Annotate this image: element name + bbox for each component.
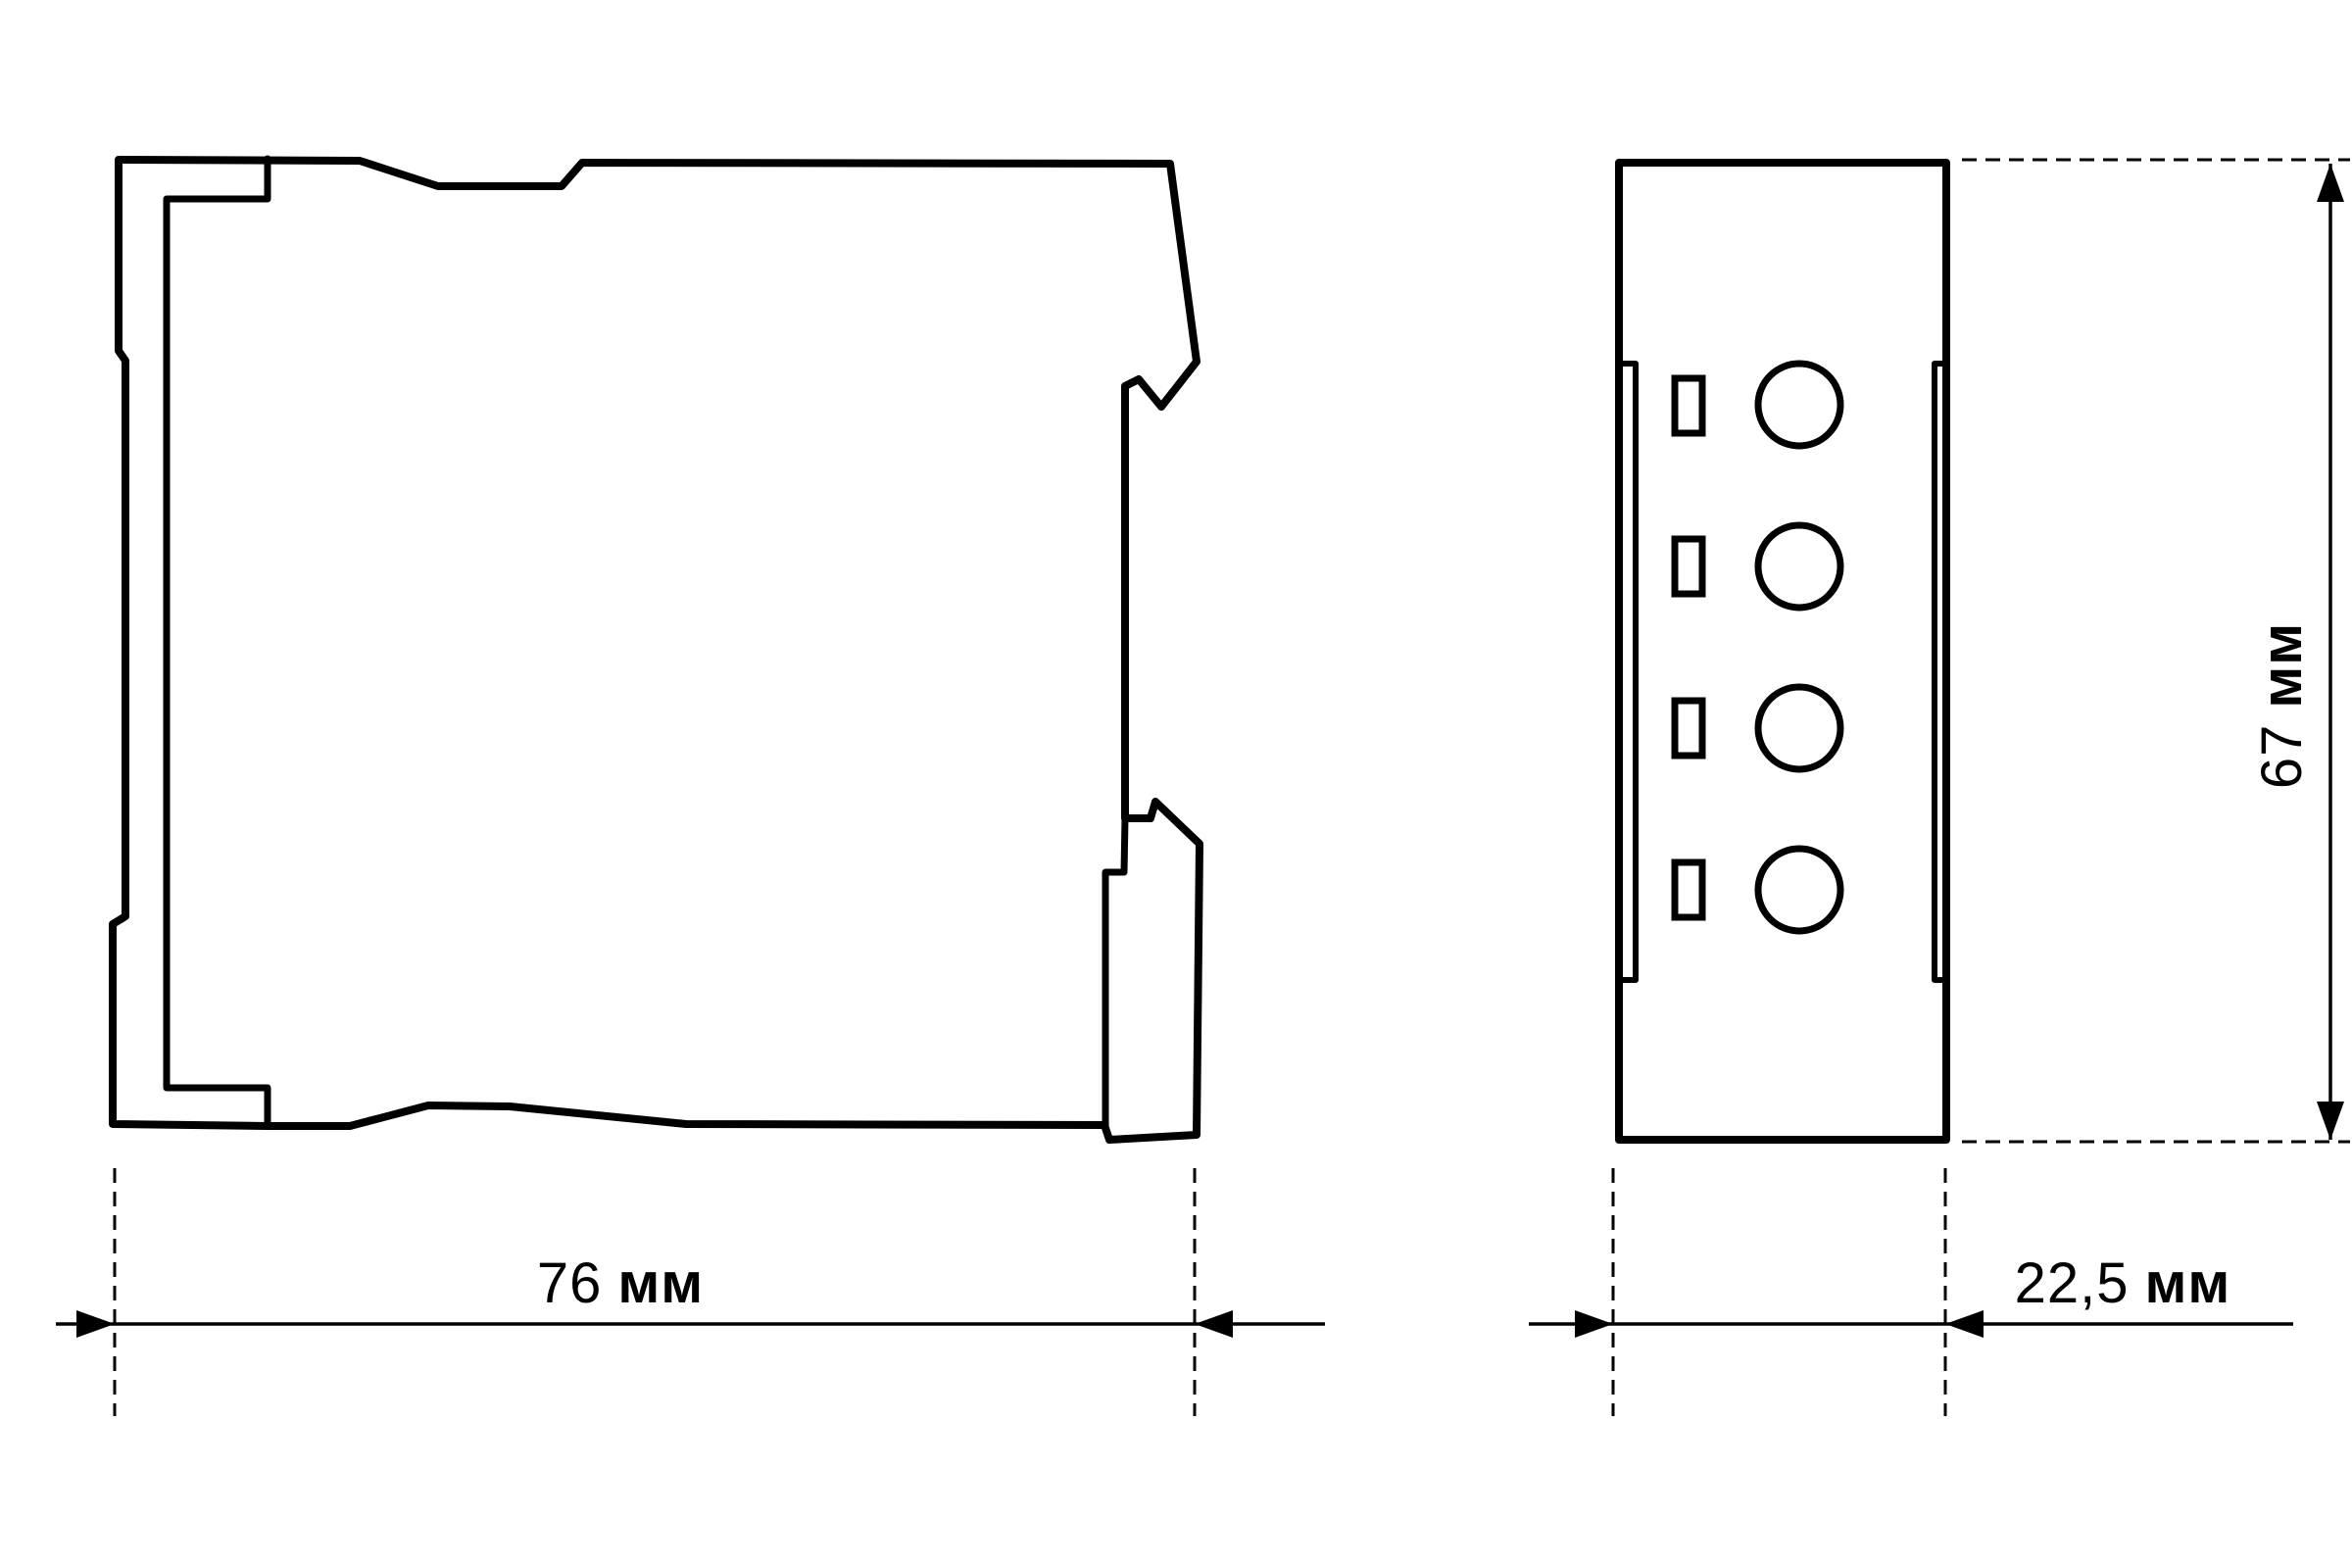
dimension-label-depth: 22,5мм — [2015, 1251, 2231, 1315]
side-view-clip-inner-edge — [167, 159, 268, 1126]
terminal-slot-rect — [1675, 701, 1702, 756]
arrowhead-right-icon — [1575, 1310, 1613, 1338]
front-view — [1619, 163, 1946, 1140]
terminal-slot-rect — [1675, 378, 1702, 433]
dimension-depth-22-5: 22,5мм — [1529, 1168, 2293, 1416]
arrowhead-down-icon — [2317, 1102, 2344, 1140]
terminal-screw-circle — [1758, 364, 1840, 446]
terminal-screw-circle — [1758, 687, 1840, 769]
dimension-height-67: 67мм — [1962, 160, 2350, 1142]
side-view — [113, 159, 1200, 1140]
terminal-slot-rect — [1675, 539, 1702, 594]
side-view-flange-hidden-edge — [1105, 818, 1125, 1126]
side-view-outline — [113, 160, 1200, 1140]
arrowhead-left-icon — [1945, 1310, 1984, 1338]
dimension-label-width: 76мм — [537, 1251, 704, 1315]
arrowhead-left-icon — [1195, 1310, 1233, 1338]
terminal-slot-rect — [1675, 862, 1702, 917]
dimension-drawing: 76мм 22,5мм 67мм — [0, 0, 2352, 1568]
terminal-screw-circle — [1758, 849, 1840, 931]
front-view-outline — [1619, 163, 1946, 1140]
technical-drawing-canvas: 76мм 22,5мм 67мм — [0, 0, 2352, 1568]
terminal-slots — [1675, 378, 1702, 917]
arrowhead-up-icon — [2317, 164, 2344, 202]
dimension-label-height: 67мм — [2250, 622, 2314, 789]
dimension-width-76: 76мм — [56, 1168, 1325, 1416]
terminal-screw-circle — [1758, 525, 1840, 608]
arrowhead-right-icon — [76, 1310, 115, 1338]
terminal-screws — [1758, 364, 1840, 931]
